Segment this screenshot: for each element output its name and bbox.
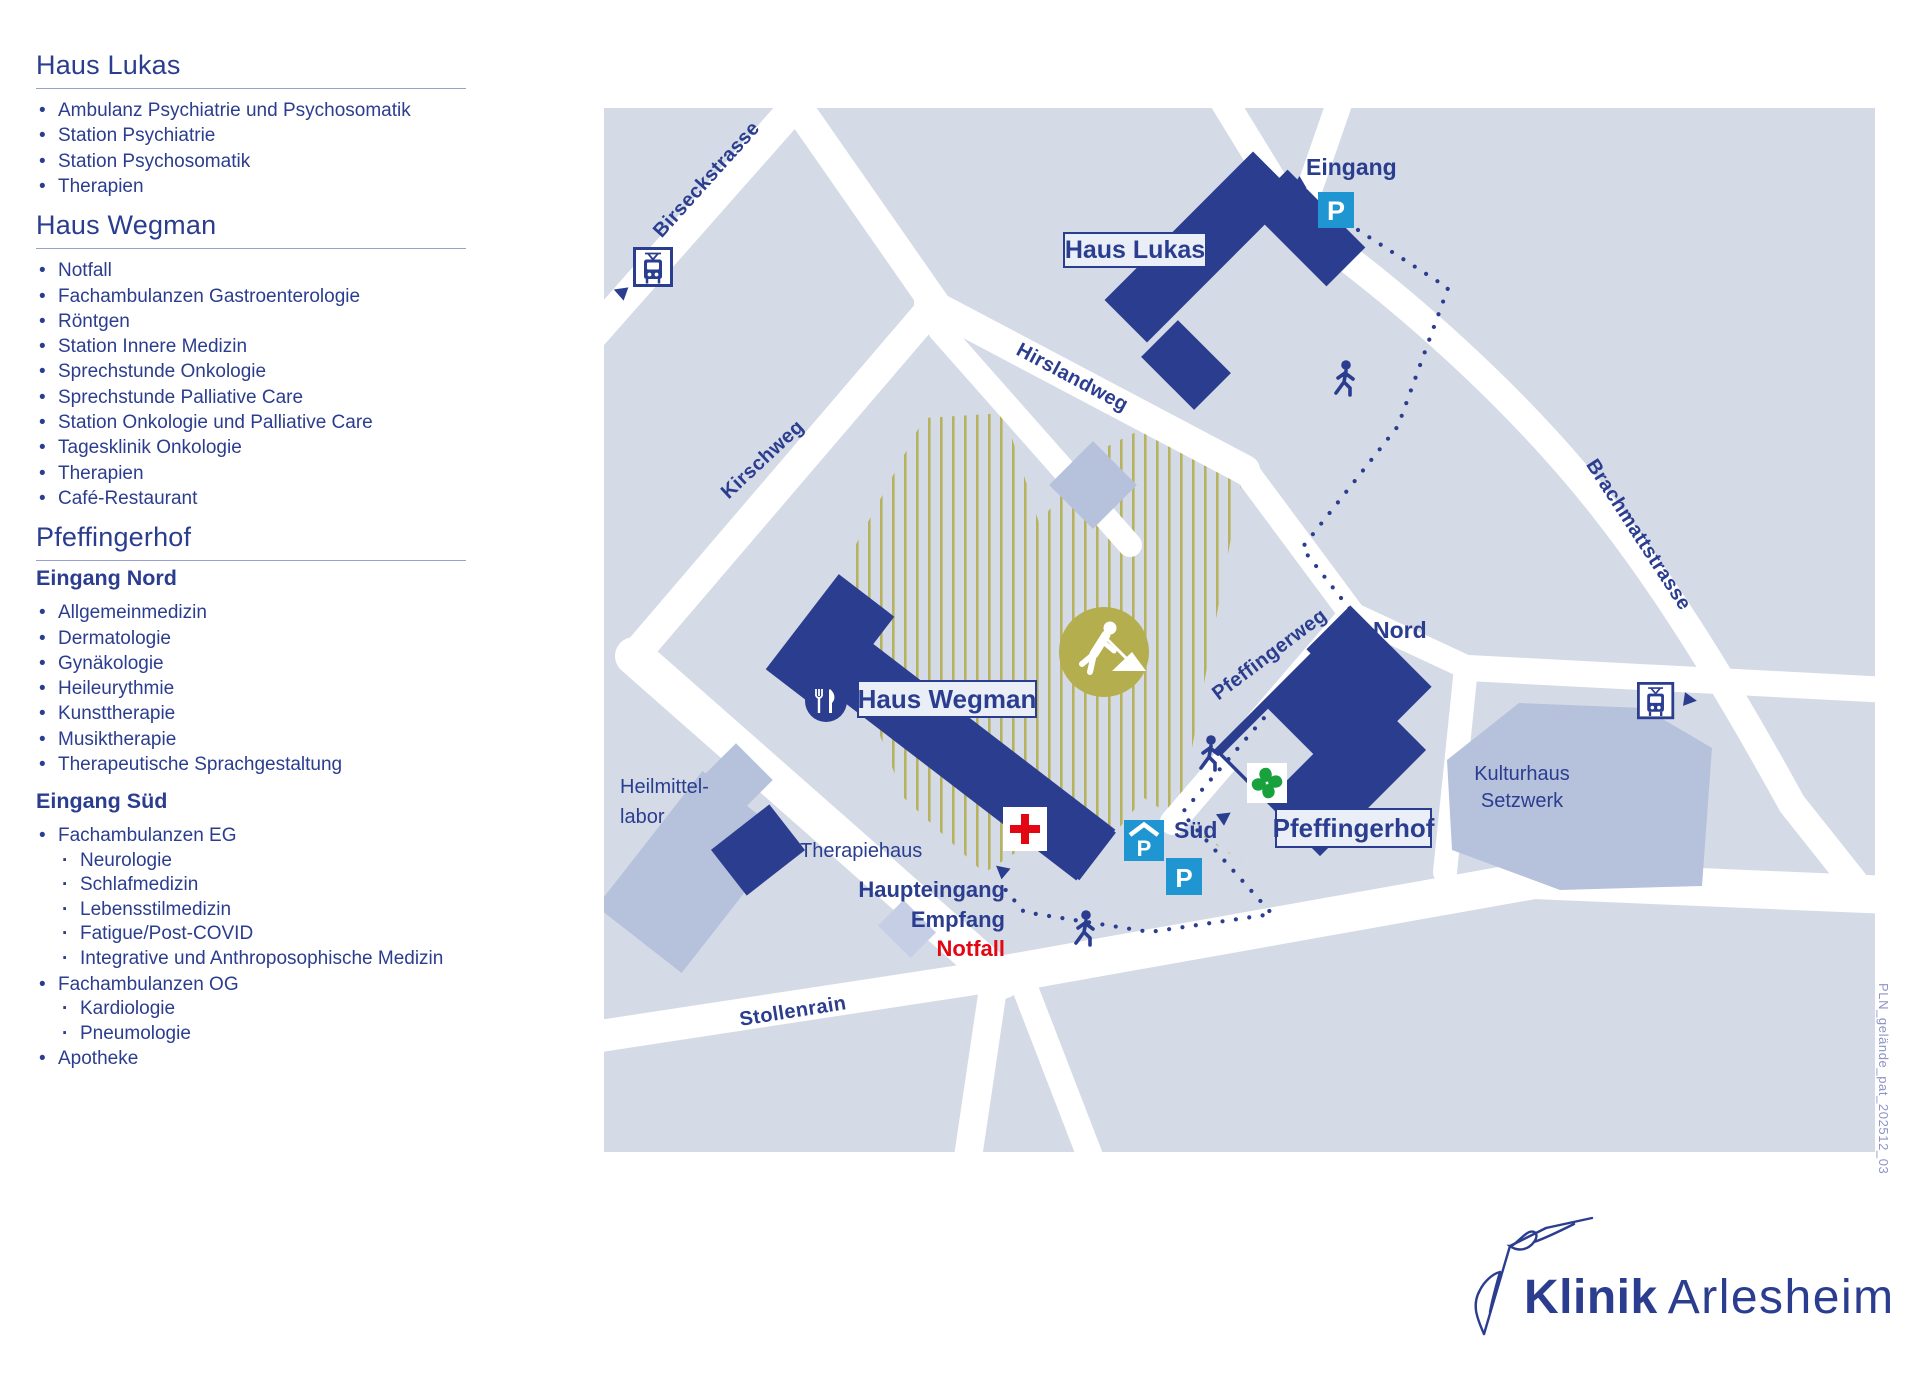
pfeffingerhof-label: Pfeffingerhof bbox=[1275, 808, 1432, 848]
parking-icon: P bbox=[1166, 858, 1202, 895]
legend-item: Fachambulanzen OG bbox=[36, 972, 466, 997]
legend-subitem: Neurologie bbox=[36, 849, 466, 874]
arrow-icon bbox=[1216, 807, 1235, 826]
streets bbox=[604, 108, 1875, 1152]
legend-item: Allgemeinmedizin bbox=[36, 600, 466, 625]
street-to-nord bbox=[1245, 470, 1352, 614]
legend-list: AllgemeinmedizinDermatologieGynäkologieH… bbox=[36, 600, 466, 777]
legend-item: Station Innere Medizin bbox=[36, 334, 466, 359]
legend-group-heading: Eingang Süd bbox=[36, 788, 466, 814]
legend-list: Fachambulanzen EGNeurologieSchlafmedizin… bbox=[36, 823, 466, 1071]
legend-item: Ambulanz Psychiatrie und Psychosomatik bbox=[36, 98, 466, 123]
legend-section: PfeffingerhofEingang NordAllgemeinmedizi… bbox=[36, 522, 466, 1071]
kulturhaus-label: Kulturhaus Setzwerk bbox=[1442, 761, 1602, 815]
legend-section-title: Haus Lukas bbox=[36, 50, 466, 89]
map-graphics: P P P bbox=[604, 108, 1875, 1152]
street-top-branch bbox=[790, 108, 935, 304]
haus-wegman-label: Haus Wegman bbox=[857, 680, 1037, 718]
legend-item: Notfall bbox=[36, 258, 466, 283]
therapiehaus-label: Therapiehaus bbox=[800, 836, 922, 866]
svg-text:P: P bbox=[1137, 836, 1152, 861]
legend-item: Therapien bbox=[36, 174, 466, 199]
klinik-arlesheim-logo: KlinikArlesheim bbox=[1470, 1212, 1890, 1352]
svg-text:P: P bbox=[1175, 863, 1192, 893]
logo-text: KlinikArlesheim bbox=[1524, 1270, 1895, 1325]
nord-label: Nord bbox=[1373, 617, 1427, 644]
construction-icon bbox=[1059, 607, 1149, 697]
street-main-south bbox=[1000, 880, 1875, 975]
covered-parking-icon: P bbox=[1124, 820, 1164, 861]
pharmacy-icon bbox=[1247, 763, 1287, 803]
street-south-right bbox=[1020, 975, 1093, 1152]
heilmittellabor-label: Heilmittel- labor bbox=[620, 772, 709, 832]
notfall-label: Notfall bbox=[793, 934, 1005, 964]
legend-section-title: Pfeffingerhof bbox=[36, 522, 466, 561]
legend-subitem: Pneumologie bbox=[36, 1022, 466, 1047]
restaurant-icon bbox=[805, 680, 847, 722]
legend-item: Fachambulanzen EG bbox=[36, 823, 466, 848]
legend-group-heading: Eingang Nord bbox=[36, 565, 466, 591]
emergency-cross-icon bbox=[1003, 807, 1047, 851]
legend-item: Café-Restaurant bbox=[36, 486, 466, 511]
eingang-label: Eingang bbox=[1306, 154, 1397, 181]
legend-item: Therapien bbox=[36, 461, 466, 486]
legend-item: Station Onkologie und Palliative Care bbox=[36, 410, 466, 435]
empfang-label: Empfang bbox=[793, 905, 1005, 935]
legend-item: Therapeutische Sprachgestaltung bbox=[36, 752, 466, 777]
haupteingang-label-block: Haupteingang Empfang Notfall bbox=[793, 875, 1005, 964]
legend-item: Fachambulanzen Gastroenterologie bbox=[36, 284, 466, 309]
svg-text:P: P bbox=[1327, 196, 1345, 226]
legend-list: NotfallFachambulanzen GastroenterologieR… bbox=[36, 258, 466, 511]
legend-item: Station Psychosomatik bbox=[36, 149, 466, 174]
legend-item: Dermatologie bbox=[36, 626, 466, 651]
logo-brand-bold: Klinik bbox=[1524, 1271, 1658, 1324]
sued-label: Süd bbox=[1174, 817, 1217, 844]
street-birseckstrasse bbox=[604, 108, 804, 345]
campus-map: P P P bbox=[604, 108, 1875, 1152]
legend-subitem: Fatigue/Post-COVID bbox=[36, 922, 466, 947]
legend-subitem: Kardiologie bbox=[36, 997, 466, 1022]
parking-icon: P bbox=[1318, 192, 1354, 228]
legend-item: Sprechstunde Onkologie bbox=[36, 359, 466, 384]
legend-item: Tagesklinik Onkologie bbox=[36, 435, 466, 460]
legend-item: Musiktherapie bbox=[36, 727, 466, 752]
legend-item: Station Psychiatrie bbox=[36, 123, 466, 148]
plan-watermark: PLN_gelände_pat_202512_03 bbox=[1876, 983, 1891, 1174]
pedestrian-icon bbox=[1336, 360, 1353, 395]
sidebar: Haus LukasAmbulanz Psychiatrie und Psych… bbox=[36, 50, 466, 1082]
legend-item: Kunsttherapie bbox=[36, 701, 466, 726]
haupteingang-label: Haupteingang bbox=[793, 875, 1005, 905]
legend-sublist: KardiologiePneumologie bbox=[36, 997, 466, 1046]
arrow-icon bbox=[1683, 692, 1698, 708]
pedestrian-icon bbox=[1076, 910, 1093, 945]
legend-subitem: Schlafmedizin bbox=[36, 873, 466, 898]
legend-item: Heileurythmie bbox=[36, 676, 466, 701]
legend-item: Apotheke bbox=[36, 1046, 466, 1071]
logo-brand-light: Arlesheim bbox=[1668, 1271, 1895, 1324]
legend-section: Haus LukasAmbulanz Psychiatrie und Psych… bbox=[36, 50, 466, 199]
tram-icon bbox=[635, 249, 672, 286]
legend-sublist: NeurologieSchlafmedizinLebensstilmedizin… bbox=[36, 849, 466, 972]
legend-subitem: Integrative und Anthroposophische Medizi… bbox=[36, 947, 466, 972]
legend-section-title: Haus Wegman bbox=[36, 210, 466, 249]
legend-subitem: Lebensstilmedizin bbox=[36, 898, 466, 923]
street-south-left bbox=[967, 975, 995, 1152]
haus-lukas-label: Haus Lukas bbox=[1063, 232, 1207, 268]
legend-item: Sprechstunde Palliative Care bbox=[36, 385, 466, 410]
legend-item: Gynäkologie bbox=[36, 651, 466, 676]
legend-list: Ambulanz Psychiatrie und PsychosomatikSt… bbox=[36, 98, 466, 199]
tram-icon bbox=[1638, 683, 1672, 717]
building-haus-lukas bbox=[1105, 152, 1366, 410]
legend-section: Haus WegmanNotfallFachambulanzen Gastroe… bbox=[36, 210, 466, 511]
legend-item: Röntgen bbox=[36, 309, 466, 334]
